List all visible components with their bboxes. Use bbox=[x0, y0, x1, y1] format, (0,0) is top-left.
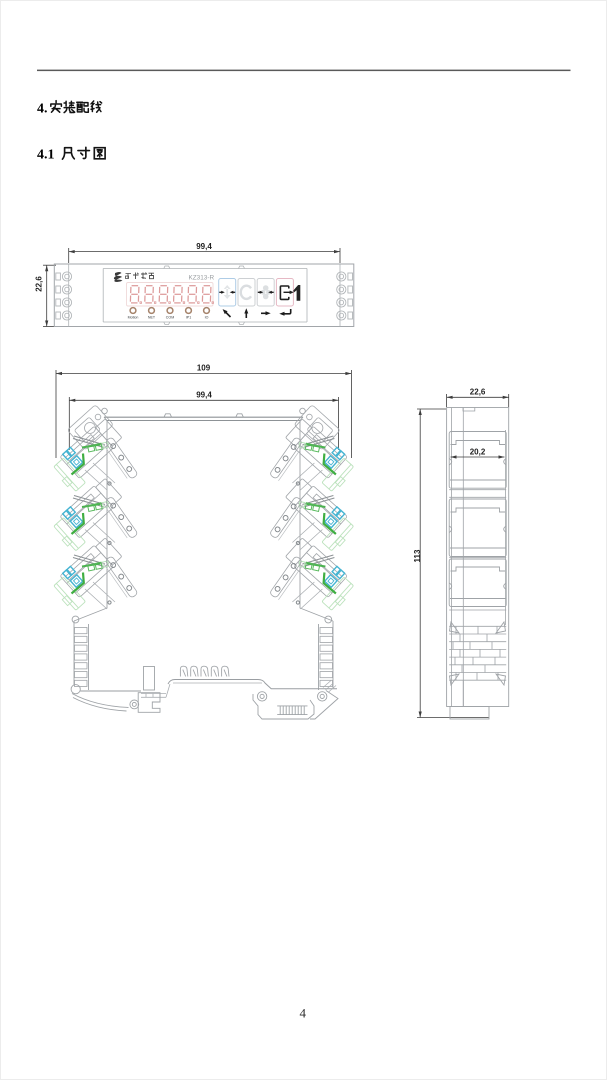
svg-text:99,4: 99,4 bbox=[196, 390, 212, 399]
svg-text:20,2: 20,2 bbox=[470, 447, 486, 456]
svg-text:NET: NET bbox=[148, 316, 156, 320]
svg-text:109: 109 bbox=[197, 364, 211, 373]
svg-text:4.1: 4.1 bbox=[37, 148, 55, 163]
svg-text:COM: COM bbox=[166, 316, 174, 320]
svg-text:22,6: 22,6 bbox=[35, 276, 44, 292]
svg-text:IP1: IP1 bbox=[186, 316, 191, 320]
svg-text:IO: IO bbox=[205, 316, 209, 320]
svg-text:4.: 4. bbox=[37, 102, 48, 117]
svg-text:Motion: Motion bbox=[128, 316, 139, 320]
svg-text:4: 4 bbox=[300, 1006, 307, 1021]
svg-text:KZ313-R: KZ313-R bbox=[189, 275, 215, 282]
svg-text:113: 113 bbox=[413, 549, 422, 562]
svg-text:99,4: 99,4 bbox=[196, 242, 212, 251]
svg-text:22,6: 22,6 bbox=[470, 387, 486, 396]
